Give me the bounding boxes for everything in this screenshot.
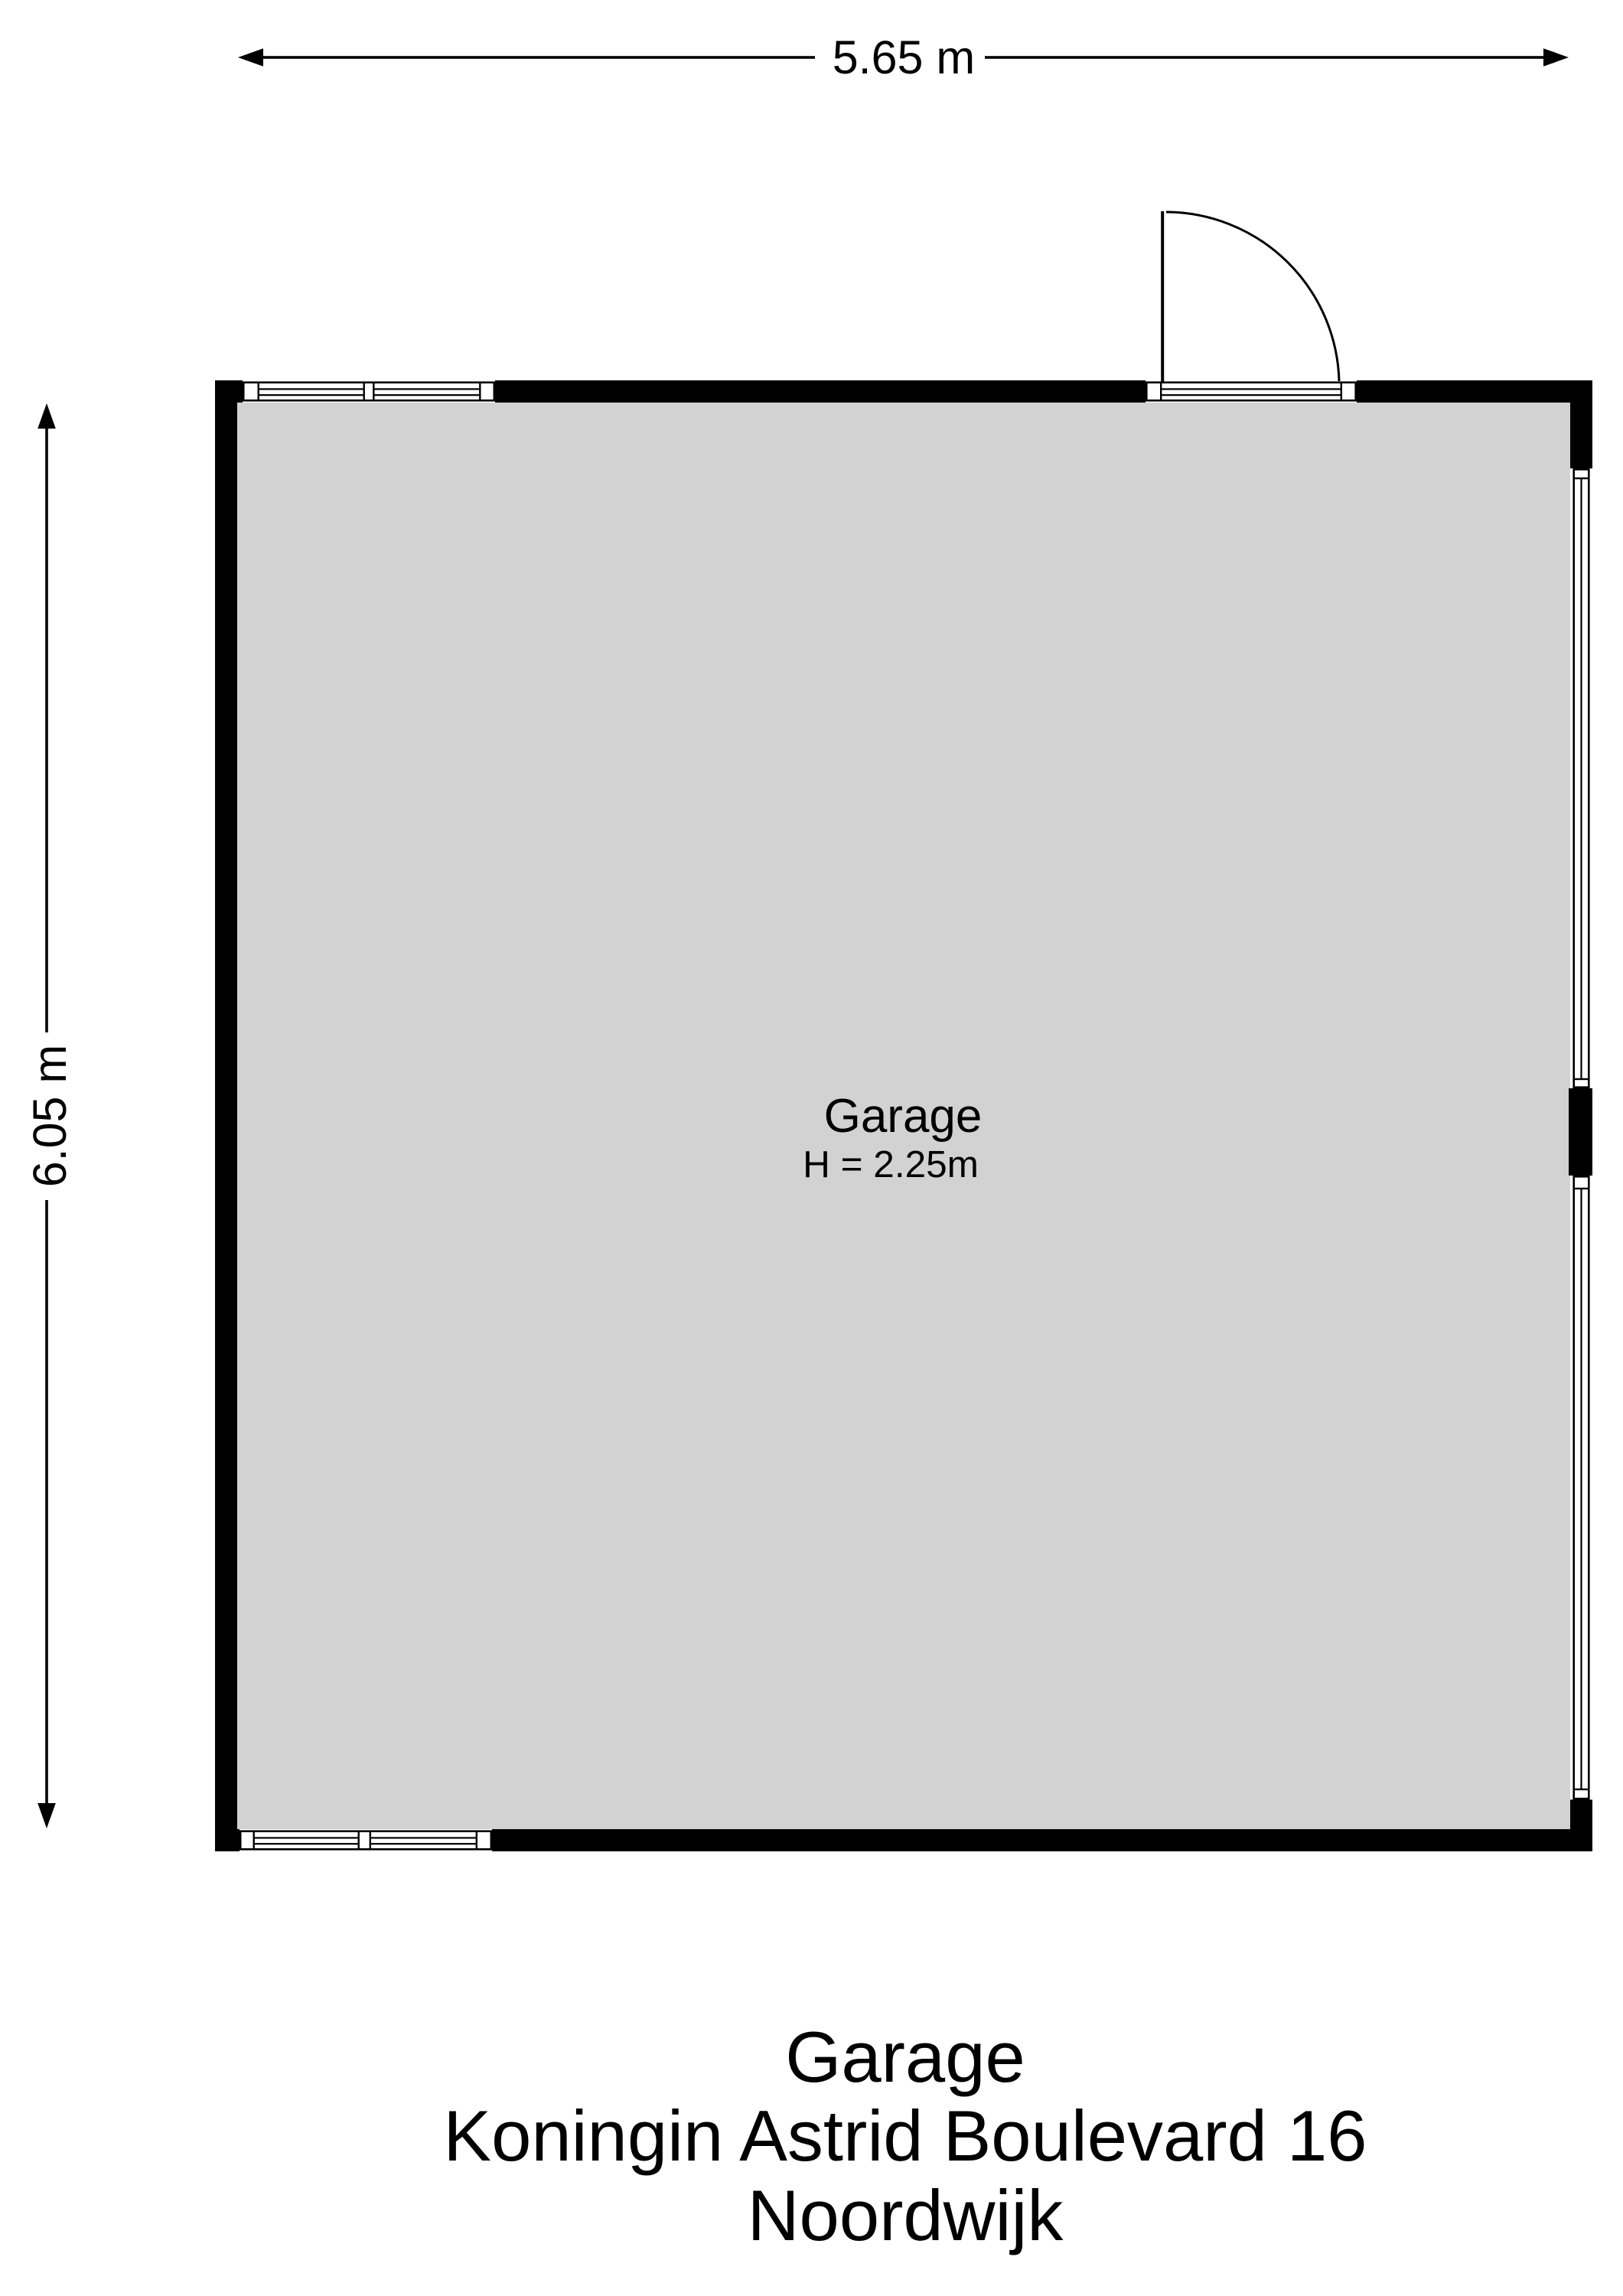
svg-text:Noordwijk: Noordwijk <box>748 2175 1064 2255</box>
svg-text:Garage: Garage <box>785 2017 1025 2097</box>
svg-text:Koningin Astrid Boulevard 16: Koningin Astrid Boulevard 16 <box>443 2095 1367 2176</box>
svg-text:6.05 m: 6.05 m <box>24 1045 76 1188</box>
svg-text:5.65 m: 5.65 m <box>833 31 976 83</box>
svg-text:Garage: Garage <box>824 1090 983 1143</box>
svg-text:H = 2.25m: H = 2.25m <box>803 1143 979 1186</box>
